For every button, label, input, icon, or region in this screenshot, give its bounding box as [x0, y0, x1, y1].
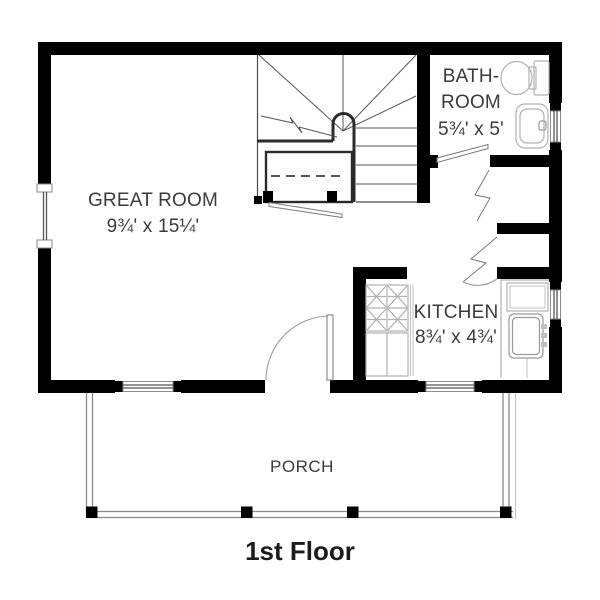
bathroom-label-line1: BATH-: [443, 66, 500, 88]
window-icon-bathroom-right: [550, 103, 561, 150]
bifold-closet-door-icon-lower: [463, 237, 497, 285]
kitchen-dimensions: 8¾' x 4¾': [415, 327, 497, 349]
window-icon-bottom-left: [115, 381, 181, 392]
kitchen-label: KITCHEN: [414, 302, 499, 324]
bathroom-sink-icon: [516, 104, 548, 148]
great-room-label: GREAT ROOM: [88, 190, 218, 212]
window-icon-kitchen-bottom: [418, 381, 482, 392]
porch-railing-icon: [86, 393, 516, 519]
porch-label: PORCH: [270, 457, 334, 477]
window-icon-left: [37, 184, 52, 248]
floor-plan: GREAT ROOM 9¾' x 15¼' BATH- ROOM 5¾' x 5…: [0, 0, 600, 600]
porch-post: [500, 507, 512, 519]
entry-door-swing-icon: [266, 315, 333, 380]
window-icon-kitchen-right: [550, 282, 561, 327]
porch-post: [86, 507, 98, 519]
toilet-icon: [501, 61, 549, 95]
bathroom-label-line2: ROOM: [441, 92, 501, 114]
bifold-closet-door-icon-upper: [475, 170, 490, 221]
porch-post: [241, 507, 253, 519]
floor-plan-drawing: [0, 0, 600, 600]
floor-title: 1st Floor: [245, 536, 355, 567]
under-stair-closet-icon: [263, 152, 352, 218]
stove-icon: [366, 285, 413, 376]
kitchen-sink-icon: [509, 314, 547, 358]
stairs-icon: [254, 55, 417, 218]
bathroom-door-icon: [437, 145, 488, 163]
porch-post: [347, 507, 359, 519]
bathroom-dimensions: 5¾' x 5': [438, 119, 504, 141]
great-room-dimensions: 9¾' x 15¼': [107, 216, 200, 238]
